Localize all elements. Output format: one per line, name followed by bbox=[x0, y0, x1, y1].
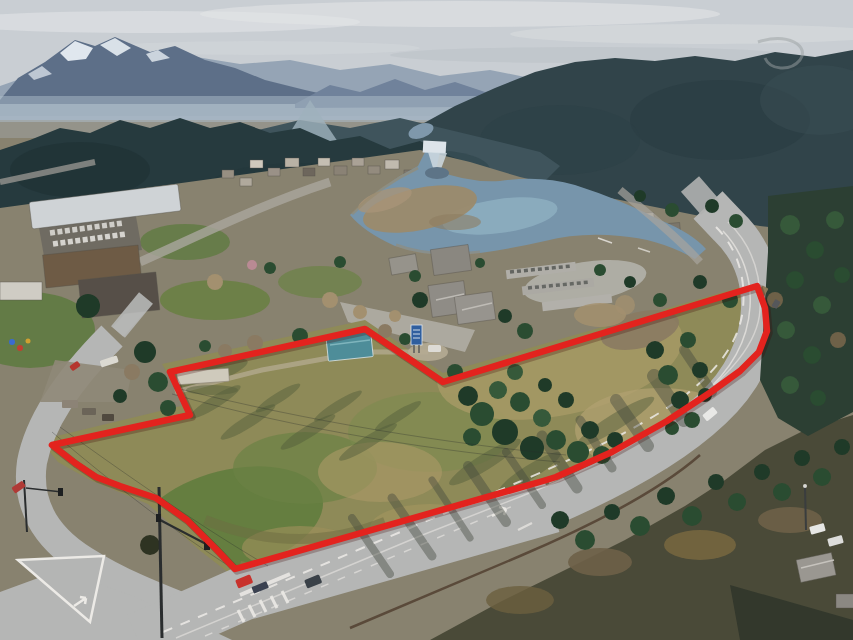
trailer-shadow bbox=[186, 385, 238, 395]
sand-flats bbox=[429, 214, 481, 230]
lawn bbox=[278, 266, 362, 298]
lamp-head bbox=[803, 484, 807, 488]
tree bbox=[76, 294, 100, 318]
forest-texture bbox=[10, 142, 150, 198]
playground-equipment bbox=[17, 345, 23, 351]
equipment-truck bbox=[102, 414, 114, 421]
business-sign bbox=[411, 325, 422, 345]
equipment-truck bbox=[62, 400, 78, 408]
condo-building bbox=[430, 244, 471, 275]
east-forest bbox=[760, 186, 853, 436]
equipment-truck bbox=[82, 408, 96, 415]
parked-white-car bbox=[428, 345, 441, 352]
playground-equipment bbox=[9, 339, 15, 345]
street-lamp bbox=[805, 487, 806, 530]
blooming-tree bbox=[247, 260, 257, 270]
aerial-photo bbox=[0, 0, 853, 640]
aerial-photo-canvas bbox=[0, 0, 853, 640]
signal-head bbox=[156, 514, 161, 522]
small-white-building bbox=[0, 282, 42, 300]
dam bbox=[423, 140, 447, 153]
cloud bbox=[200, 1, 720, 27]
playground-equipment bbox=[26, 339, 31, 344]
house-roof bbox=[836, 594, 853, 608]
signal-head bbox=[58, 488, 63, 496]
condo-lodge bbox=[454, 291, 496, 324]
dam-pool bbox=[425, 167, 449, 179]
bush bbox=[140, 535, 160, 555]
